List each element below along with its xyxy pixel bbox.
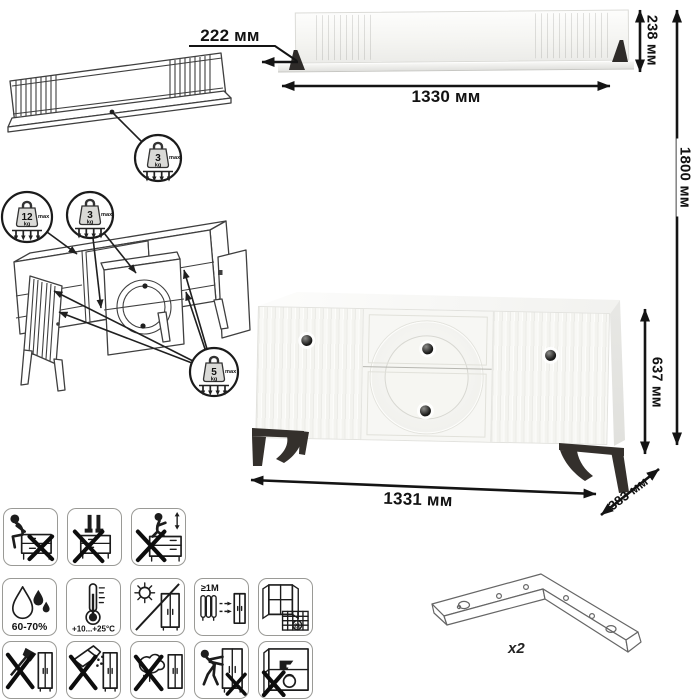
care-icon-temperature: +10...+25°C — [66, 578, 121, 636]
right-door-knob — [545, 350, 556, 361]
svg-text:max: max — [225, 369, 237, 375]
svg-text:3: 3 — [155, 153, 161, 164]
bracket-quantity-label: x2 — [508, 640, 525, 657]
sideboard-drawer-section — [362, 309, 493, 442]
svg-text:kg: kg — [87, 220, 94, 226]
bottom-drawer-frame — [367, 371, 487, 437]
care-icon-no-sharp-tools — [2, 641, 57, 699]
care-icon-no-wet-cloth — [130, 641, 185, 699]
care-icon-humidity: 60-70% — [2, 578, 57, 636]
svg-text:12: 12 — [21, 212, 33, 223]
svg-text:60-70%: 60-70% — [12, 622, 47, 633]
shelf-grooves-right — [535, 13, 612, 59]
shelf-grooves-left — [316, 15, 373, 60]
weight-limit-callout-drawers: 3 kg max — [67, 192, 113, 239]
svg-text:kg: kg — [24, 222, 31, 228]
care-icon-no-abrasives — [66, 641, 121, 699]
svg-text:+10...+25°C: +10...+25°C — [72, 625, 115, 634]
dimension-label-shelf-height: 238 мм — [644, 11, 659, 69]
svg-text:3: 3 — [87, 210, 93, 221]
dimension-label-shelf-depth: 222 мм — [190, 27, 270, 44]
sideboard-left-door — [256, 307, 364, 439]
svg-text:max: max — [169, 155, 181, 161]
furniture-spec-sheet: 3 kg max — [0, 0, 694, 700]
care-icon-no-standing — [67, 508, 122, 566]
dimension-label-cabinet-width: 1331 мм — [368, 489, 469, 509]
shelf-board — [278, 61, 634, 72]
wall-shelf-line-drawing — [8, 53, 231, 142]
mounting-bracket-drawing — [432, 574, 641, 652]
care-icon-no-dragging — [194, 641, 249, 699]
svg-text:max: max — [38, 214, 50, 220]
care-icon-no-sitting — [3, 508, 58, 566]
svg-text:21: 21 — [294, 624, 300, 630]
weight-limit-callout-shelf: 3 kg max — [135, 135, 181, 182]
weight-limit-callout-top: 12 kg max — [2, 192, 52, 242]
sideboard-front — [255, 306, 610, 445]
care-icon-heat-distance: ≥1M — [194, 578, 249, 636]
sideboard-right-door — [490, 312, 609, 444]
dimension-label-shelf-width: 1330 мм — [396, 88, 496, 105]
svg-text:kg: kg — [155, 163, 162, 169]
care-icon-ventilation: 21 — [258, 578, 313, 636]
dimension-label-cabinet-height: 637 мм — [649, 352, 664, 412]
care-icon-no-overloading — [258, 641, 313, 699]
care-icon-no-climbing — [131, 508, 186, 566]
exploded-cabinet-drawing — [14, 221, 250, 391]
svg-text:≥1M: ≥1M — [201, 583, 219, 593]
care-icon-no-direct-sunlight — [130, 578, 185, 636]
shelf-back-panel — [295, 10, 629, 64]
dimension-label-total-height: 1800 мм — [677, 139, 694, 217]
sideboard-render — [250, 288, 640, 503]
svg-text:kg: kg — [211, 377, 218, 383]
weight-limit-callout-shelves: 5 kg max — [190, 348, 238, 396]
svg-text:5: 5 — [211, 367, 217, 378]
wall-shelf-render — [278, 6, 634, 78]
svg-text:max: max — [101, 212, 113, 218]
left-door-knob — [301, 335, 312, 346]
top-drawer-frame — [368, 314, 488, 365]
